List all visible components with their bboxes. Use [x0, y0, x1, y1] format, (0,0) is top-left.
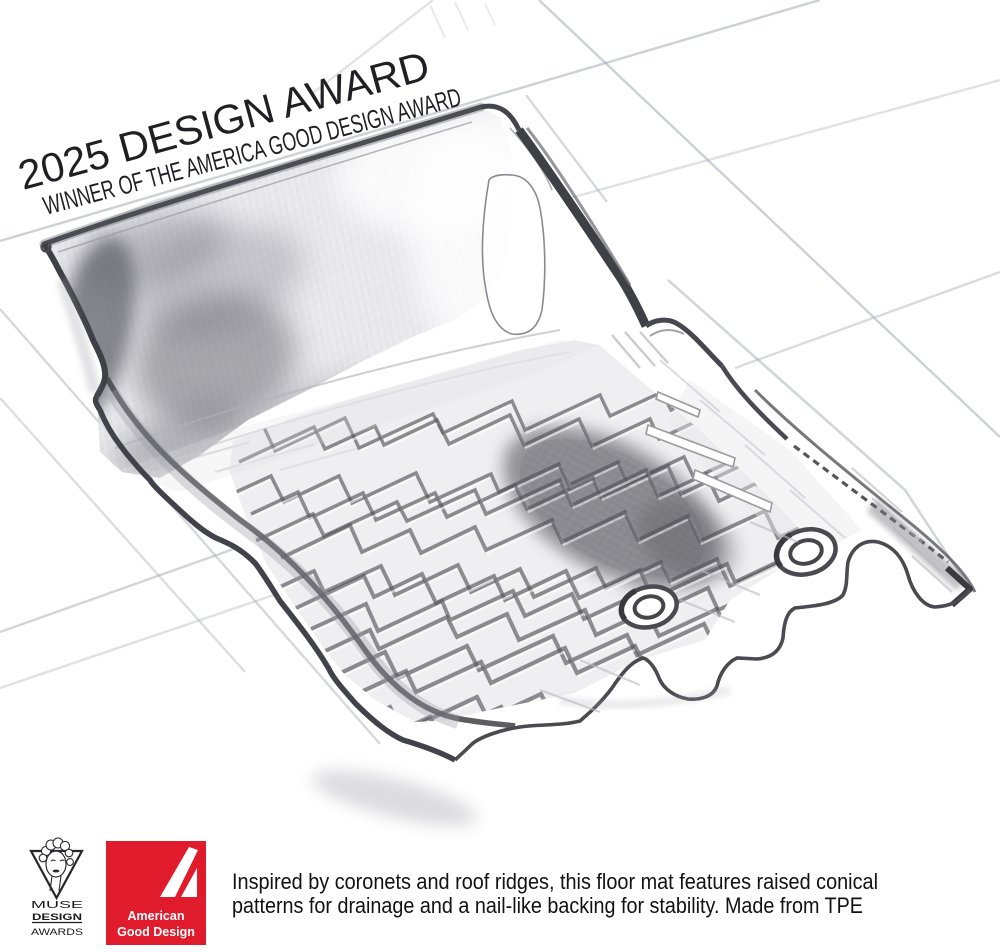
svg-text:DESIGN: DESIGN — [32, 912, 82, 922]
svg-text:patterns for drainage and a na: patterns for drainage and a nail-like ba… — [232, 893, 863, 918]
svg-text:Inspired by coronets and roof: Inspired by coronets and roof ridges, th… — [232, 869, 878, 894]
svg-text:AWARDS: AWARDS — [31, 927, 83, 938]
svg-text:Good Design: Good Design — [117, 925, 195, 939]
svg-text:MUSE: MUSE — [31, 900, 84, 911]
svg-text:American: American — [128, 909, 185, 923]
